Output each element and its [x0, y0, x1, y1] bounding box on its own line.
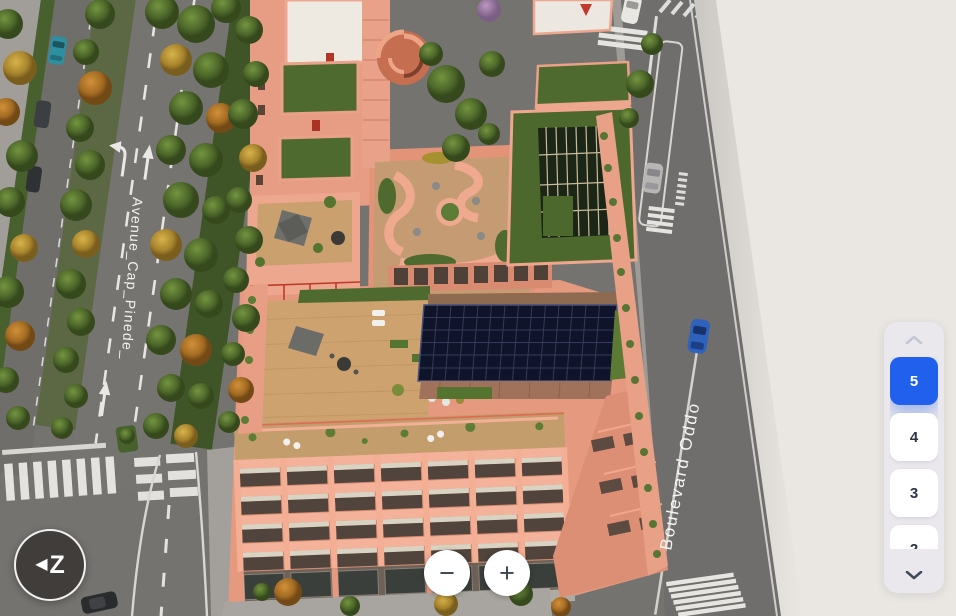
floor-scroll-up-button[interactable] — [903, 330, 925, 348]
aerial-render[interactable]: Avenue_Cap_Pinede_ Boulevard Oddo — [0, 0, 956, 616]
plus-icon: + — [499, 560, 515, 587]
zoom-in-button[interactable]: + — [484, 550, 530, 596]
chevron-up-icon — [905, 335, 923, 344]
compass-north-letter: Z — [50, 553, 65, 578]
minus-icon: − — [439, 560, 455, 587]
floor-scroll-down-button[interactable] — [884, 566, 944, 584]
compass-reset-button[interactable]: ◀ Z — [14, 529, 86, 601]
compass-arrow-icon: ◀ — [35, 557, 47, 573]
floor-button-4[interactable]: 4 — [890, 413, 938, 461]
zoom-out-button[interactable]: − — [424, 550, 470, 596]
floor-button-3[interactable]: 3 — [890, 469, 938, 517]
map-viewport: Avenue_Cap_Pinede_ Boulevard Oddo ◀ Z − … — [0, 0, 956, 616]
solar-panels — [418, 305, 617, 381]
floor-list: 5 4 3 2 — [890, 357, 938, 549]
chevron-down-icon — [905, 571, 923, 580]
floor-button-2[interactable]: 2 — [890, 525, 938, 549]
floor-selector-panel: 5 4 3 2 — [884, 322, 944, 593]
floor-button-5[interactable]: 5 — [890, 357, 938, 405]
